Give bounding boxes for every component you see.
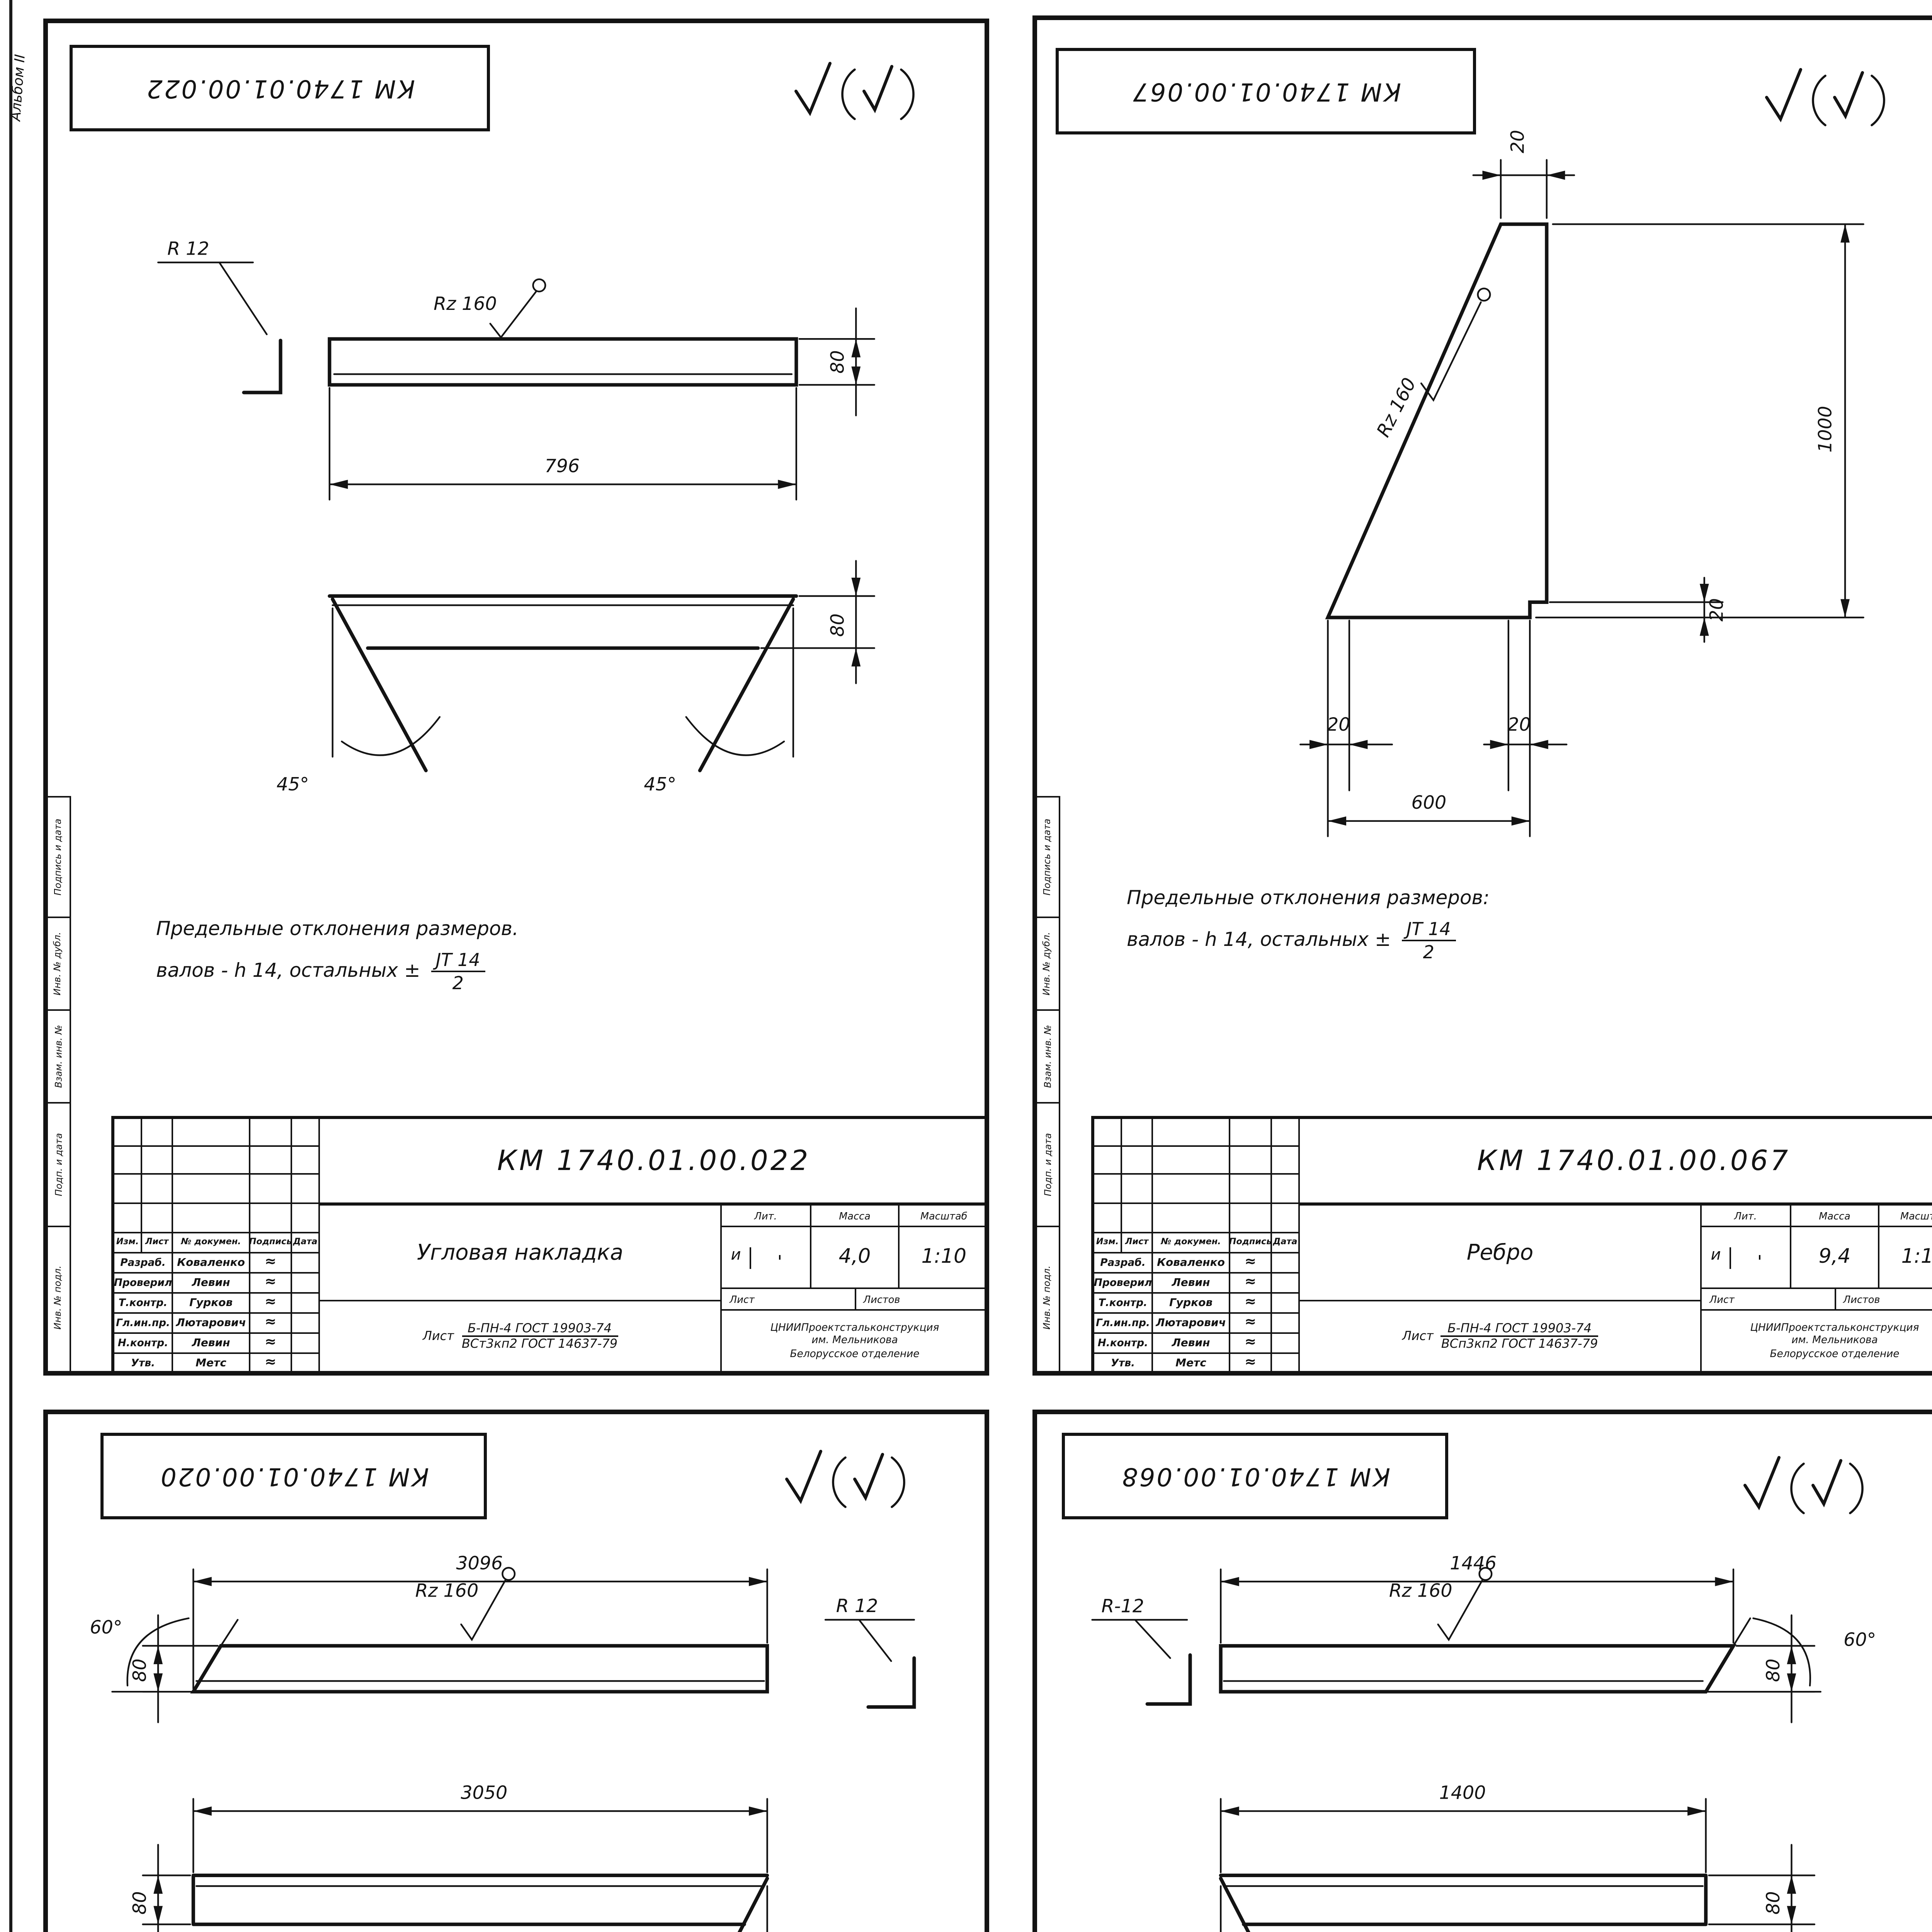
signature bbox=[1230, 1253, 1272, 1274]
organization: ЦНИИПроектстальконструкцияим. Мельникова… bbox=[722, 1311, 988, 1371]
revision-table: Изм.Лист№ докумен.ПодписьДата Разраб.Ков… bbox=[1094, 1119, 1300, 1371]
dim-label: R 12 bbox=[167, 238, 209, 259]
material-spec: ЛистБ-ПН-4 ГОСТ 19903-74ВСт3кп2 ГОСТ 146… bbox=[320, 1301, 720, 1371]
dim-label: 600 bbox=[1412, 792, 1447, 813]
signature bbox=[1230, 1274, 1272, 1294]
title-block: Изм.Лист№ докумен.ПодписьДата Разраб.Ков… bbox=[111, 1116, 985, 1371]
staff-name: Левин bbox=[1153, 1334, 1230, 1354]
dim-label: 20 bbox=[1327, 714, 1350, 735]
dim-label: 1446 bbox=[1450, 1553, 1497, 1574]
dim-label: 45° bbox=[644, 774, 676, 795]
part-name: Угловая накладка bbox=[320, 1206, 720, 1301]
signature bbox=[1230, 1334, 1272, 1354]
sheet-km-068: Подпись и дата Инв. № дубл. Взам. инв. №… bbox=[1032, 1410, 1932, 1932]
litera: и bbox=[722, 1247, 752, 1268]
doc-number: КМ 1740.01.00.067 bbox=[1300, 1119, 1932, 1206]
signature bbox=[250, 1354, 292, 1374]
page-edge-line bbox=[9, 0, 12, 1932]
note-line: Предельные отклонения размеров: bbox=[1127, 886, 1490, 909]
staff-role: Гл.ин.пр. bbox=[114, 1314, 173, 1334]
mass-value: 4,0 bbox=[811, 1227, 900, 1287]
sheet-km-067: Подпись и дата Инв. № дубл. Взам. инв. №… bbox=[1032, 15, 1932, 1376]
dim-label: 80 bbox=[129, 1891, 150, 1914]
litera: и bbox=[1702, 1247, 1731, 1268]
title-block: Изм.Лист№ докумен.ПодписьДата Разраб.Ков… bbox=[1091, 1116, 1932, 1371]
staff-name: Левин bbox=[173, 1334, 250, 1354]
staff-role: Разраб. bbox=[114, 1253, 173, 1274]
staff-name: Коваленко bbox=[1153, 1253, 1230, 1274]
signature bbox=[250, 1314, 292, 1334]
dim-label: Rz 160 bbox=[1389, 1580, 1452, 1602]
staff-name: Лютарович bbox=[1153, 1314, 1230, 1334]
dim-label: 20 bbox=[1507, 130, 1528, 153]
tolerance-note: Предельные отклонения размеров: валов - … bbox=[1127, 886, 1490, 963]
signature bbox=[250, 1334, 292, 1354]
scanned-drawing-page: Альбом II 131 Т-30.54 Подпись и дата Инв… bbox=[0, 0, 1932, 1932]
dim-label: 45° bbox=[277, 774, 309, 795]
staff-role: Т.контр. bbox=[114, 1294, 173, 1314]
staff-name: Левин bbox=[1153, 1274, 1230, 1294]
staff-name: Метс bbox=[173, 1354, 250, 1374]
dim-label: Rz 160 bbox=[434, 293, 497, 315]
doc-number: КМ 1740.01.00.022 bbox=[320, 1119, 988, 1206]
signature bbox=[250, 1274, 292, 1294]
note-line: Предельные отклонения размеров. bbox=[156, 917, 519, 940]
dim-label: 20 bbox=[1507, 714, 1531, 735]
dim-label: 20 bbox=[1706, 598, 1727, 621]
part-drawing-068: 1446 60° 80 Rz 160 R-12 1400 45° 80 bbox=[1037, 1414, 1932, 1932]
dim-label: R-12 bbox=[1101, 1595, 1144, 1617]
tolerance-note: Предельные отклонения размеров. валов - … bbox=[156, 917, 519, 994]
mass-value: 9,4 bbox=[1791, 1227, 1880, 1287]
sheet-km-020: Подпись и дата Инв. № дубл. Взам. инв. №… bbox=[43, 1410, 989, 1932]
staff-role: Проверил bbox=[114, 1274, 173, 1294]
staff-name: Метс bbox=[1153, 1354, 1230, 1374]
signature bbox=[1230, 1294, 1272, 1314]
staff-role: Проверил bbox=[1094, 1274, 1153, 1294]
scale-value: 1:10 bbox=[900, 1227, 988, 1287]
tolerance-fraction: JT 142 bbox=[1402, 918, 1456, 963]
staff-role: Н.контр. bbox=[1094, 1334, 1153, 1354]
dim-label: Rz 160 bbox=[1373, 374, 1420, 440]
staff-name: Лютарович bbox=[173, 1314, 250, 1334]
scale-value: 1:10 bbox=[1880, 1227, 1932, 1287]
staff-role: Разраб. bbox=[1094, 1253, 1153, 1274]
dim-label: 60° bbox=[1844, 1629, 1876, 1650]
staff-role: Гл.ин.пр. bbox=[1094, 1314, 1153, 1334]
signature bbox=[250, 1294, 292, 1314]
tolerance-fraction: JT 142 bbox=[431, 949, 485, 994]
part-drawing-020: 3096 60° 80 Rz 160 R 12 3050 45° 80 bbox=[48, 1414, 985, 1932]
note-line: валов - h 14, остальных ± bbox=[1127, 927, 1391, 951]
dim-label: Rz 160 bbox=[415, 1580, 479, 1602]
revision-table: Изм.Лист№ докумен.ПодписьДата Разраб.Ков… bbox=[114, 1119, 320, 1371]
staff-role: Утв. bbox=[114, 1354, 173, 1374]
dim-label: 1400 bbox=[1439, 1782, 1486, 1803]
signature bbox=[1230, 1354, 1272, 1374]
material-spec: ЛистБ-ПН-4 ГОСТ 19903-74ВСп3кп2 ГОСТ 146… bbox=[1300, 1301, 1700, 1371]
signature bbox=[1230, 1314, 1272, 1334]
staff-name: Левин bbox=[173, 1274, 250, 1294]
dim-label: 1000 bbox=[1815, 406, 1836, 452]
note-line: валов - h 14, остальных ± bbox=[156, 958, 420, 981]
dim-label: 80 bbox=[827, 614, 849, 637]
staff-role: Утв. bbox=[1094, 1354, 1153, 1374]
dim-label: R 12 bbox=[836, 1595, 878, 1617]
sheet-km-022: Подпись и дата Инв. № дубл. Взам. инв. №… bbox=[43, 19, 989, 1376]
dim-label: 80 bbox=[1763, 1659, 1784, 1682]
staff-role: Т.контр. bbox=[1094, 1294, 1153, 1314]
staff-name: Коваленко bbox=[173, 1253, 250, 1274]
dim-label: 80 bbox=[129, 1658, 150, 1682]
organization: ЦНИИПроектстальконструкцияим. Мельникова… bbox=[1702, 1311, 1932, 1371]
staff-role: Н.контр. bbox=[114, 1334, 173, 1354]
album-label: Альбом II bbox=[9, 54, 29, 121]
staff-name: Гурков bbox=[1153, 1294, 1230, 1314]
part-name: Ребро bbox=[1300, 1206, 1700, 1301]
dim-label: 80 bbox=[827, 350, 849, 373]
dim-label: 60° bbox=[90, 1617, 122, 1638]
staff-name: Гурков bbox=[173, 1294, 250, 1314]
dim-label: 796 bbox=[544, 456, 580, 477]
dim-label: 3050 bbox=[461, 1782, 507, 1803]
dim-label: 3096 bbox=[456, 1553, 503, 1574]
signature bbox=[250, 1253, 292, 1274]
dim-label: 80 bbox=[1763, 1891, 1784, 1915]
